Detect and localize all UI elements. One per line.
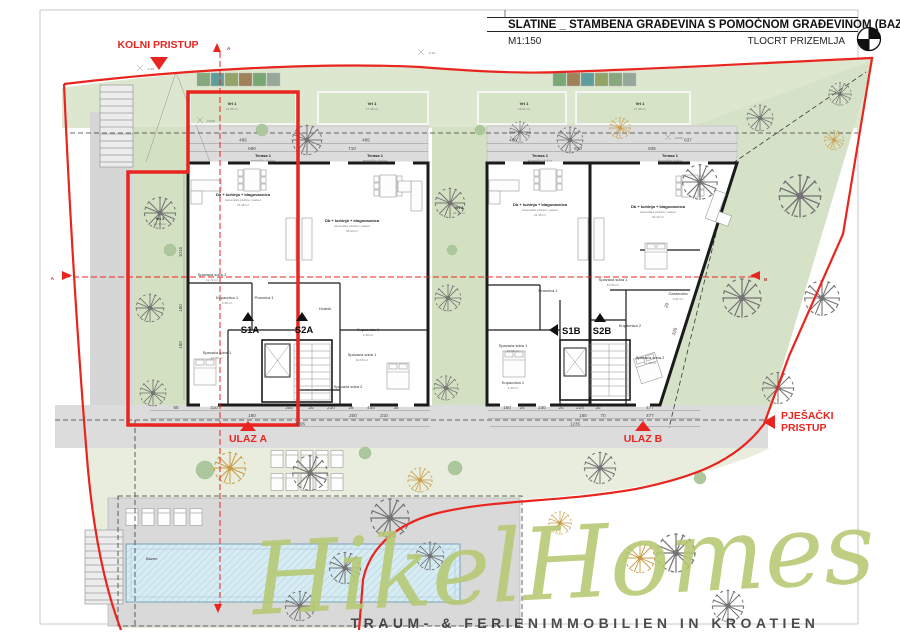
garden-area: 14.53 m² (226, 107, 238, 111)
dim-total: 1495 (295, 422, 306, 427)
garden-label: Vrt 1 (368, 101, 377, 106)
garden-area: 17.40 m² (634, 107, 646, 111)
garden-label: Vrt 2 (455, 205, 464, 210)
dim: 1015 (178, 246, 183, 257)
dim: 25 (558, 405, 564, 410)
pjesacki-pristup-label-1: PJEŠAČKI (781, 409, 834, 422)
room-finish: keramičke pločice i parket (640, 210, 676, 214)
dim: 180 (248, 413, 256, 418)
dim: 485 (239, 138, 247, 143)
room-label: Spavaća soba 1 (499, 343, 528, 348)
terrace-finish: keramičke pločice (251, 159, 276, 163)
dim: 150 (503, 405, 511, 410)
drawing-scale: M1:150 (508, 36, 542, 47)
terrace-finish: keramičke pločice (528, 159, 553, 163)
room-label: Kupaonica 1 (502, 380, 525, 385)
room-finish: keramičke pločice i parket (522, 208, 558, 212)
dim: 637 (684, 138, 692, 143)
garden-area: 22.15 m² (154, 222, 166, 226)
project-title: SLATINE _ STAMBENA GRAĐEVINA S POMOĆNOM … (508, 18, 900, 31)
terrace-band-left (188, 126, 428, 163)
room-label: Praonica 1 (254, 295, 274, 300)
pool-label: Bazen (146, 556, 157, 561)
room-area: 4.30 m² (363, 333, 374, 337)
garden-label: Vrt 1 (228, 101, 237, 106)
dim: 477 (646, 405, 654, 410)
room-area: 11.72 m² (644, 361, 656, 365)
dim-total: 1235 (570, 422, 581, 427)
room-area: 4.30 m² (508, 386, 519, 390)
room-label: Garderoba (668, 291, 688, 296)
unit-label-s1a: S1A (241, 325, 260, 336)
room-area: 4.30 m² (222, 301, 233, 305)
room-label: Db + kuhinja + blagovaonica (216, 192, 271, 197)
dim: 485 (509, 138, 517, 143)
room-label: Spavaća soba 2 (198, 272, 227, 277)
room-label: Praonica 1 (538, 288, 558, 293)
garden-area: 14.61 m² (518, 107, 530, 111)
dim: 610 (574, 146, 582, 151)
room-label: Spavaća soba 1 (203, 350, 232, 355)
room-label: Spavaća soba 2 (636, 355, 665, 360)
dim: 310 (210, 405, 218, 410)
room-label: Spavaća soba 1 (348, 352, 377, 357)
middle-garden-strip (432, 127, 487, 405)
terrace-label: Terasa 1 (367, 153, 384, 158)
dim: 485 (362, 138, 370, 143)
room-area: 10.50 m² (356, 358, 368, 362)
room-area: 10.50 m² (507, 349, 519, 353)
dim: 25 (595, 405, 601, 410)
ulaz-b-label: ULAZ B (624, 433, 663, 445)
room-area: 11.72 m² (206, 278, 218, 282)
room-label: Kupaonica 1 (216, 295, 239, 300)
elevation-value: ±0.00 (675, 136, 683, 140)
elevation-value: -2.10 (147, 67, 154, 71)
dim: 200 (349, 413, 357, 418)
dim: 710 (348, 146, 356, 151)
garden-label: Vrt 1 (636, 101, 645, 106)
dim: 70 (600, 413, 606, 418)
room-area: 43.44 m² (652, 215, 664, 219)
garden-label: Vrt 1 (520, 101, 529, 106)
room-area: 4.62 m² (673, 297, 684, 301)
unit-label-s2b: S2B (593, 326, 612, 337)
dim: 160 (178, 304, 183, 312)
room-finish: keramičke pločice i parket (225, 198, 261, 202)
dim: 355 (285, 405, 293, 410)
dim: 35 (393, 405, 399, 410)
room-label: Db + kuhinja + blagovaonica (631, 204, 686, 209)
dim: 690 (248, 146, 256, 151)
room-area: 10.50 m² (211, 356, 223, 360)
room-label: Db + kuhinja + blagovaonica (325, 218, 380, 223)
terrace-label: Terasa 1 (532, 153, 549, 158)
room-label: Spavaća soba 2 (334, 384, 363, 389)
garden-area: 17.40 m² (366, 107, 378, 111)
dim: 455 (367, 405, 375, 410)
elevation-value: -2.10 (428, 51, 435, 55)
terrace-label: Terasa 1 (662, 153, 679, 158)
dim: 230 (538, 405, 546, 410)
room-label: Kupaonica 2 (619, 323, 642, 328)
room-area: 10.50 m² (607, 283, 619, 287)
terrace-finish: keramičke pločice (658, 159, 683, 163)
elevation-value: ±0.00 (207, 119, 215, 123)
dim: 180 (579, 413, 587, 418)
room-finish: keramičke pločice i parket (334, 224, 370, 228)
dim: 477 (646, 413, 654, 418)
terrace-label: Terasa 1 (255, 153, 272, 158)
dim: 180 (178, 341, 183, 349)
ulaz-a-label: ULAZ A (229, 433, 268, 445)
room-label: Db + kuhinja + blagovaonica (513, 202, 568, 207)
dim: 210 (380, 413, 388, 418)
room-area: 41.45 m² (534, 213, 546, 217)
room-area: 43.44 m² (346, 229, 358, 233)
unit-label-s1b: S1B (562, 326, 581, 337)
room-area: 41.45 m² (237, 203, 249, 207)
dim: 55 (173, 405, 179, 410)
dim: 935 (648, 146, 656, 151)
pjesacki-pristup-label-2: PRISTUP (781, 422, 827, 434)
unit-label-s2a: S2A (295, 325, 314, 336)
garden-area: 22.16 m² (453, 211, 465, 215)
watermark-tagline: TRAUM- & FERIENIMMOBILIEN IN KROATIEN (351, 615, 820, 631)
garden-label: Vrt 2 (156, 216, 165, 221)
kolni-pristup-label: KOLNI PRISTUP (117, 39, 198, 51)
dim: 230 (327, 405, 335, 410)
room-label: Kupaonica 1 (357, 327, 380, 332)
dim: 25 (348, 405, 354, 410)
terrace-finish: keramičke pločice (363, 159, 388, 163)
dim: 25 (308, 405, 314, 410)
site-plan-canvas: A A B -2.10 -2.10 ±0.00 ±0.00 Vrt 1 14.5… (0, 0, 900, 636)
dim: 25 (519, 405, 525, 410)
terrace-band-right (487, 126, 737, 163)
room-label: Spavaća soba 1 (599, 277, 628, 282)
dim: 224 (576, 405, 584, 410)
room-label: Hodnik (319, 306, 331, 311)
north-compass-icon (858, 28, 881, 51)
drawing-name: TLOCRT PRIZEMLJA (748, 36, 846, 47)
garden-vrt1-s1a (190, 92, 296, 124)
